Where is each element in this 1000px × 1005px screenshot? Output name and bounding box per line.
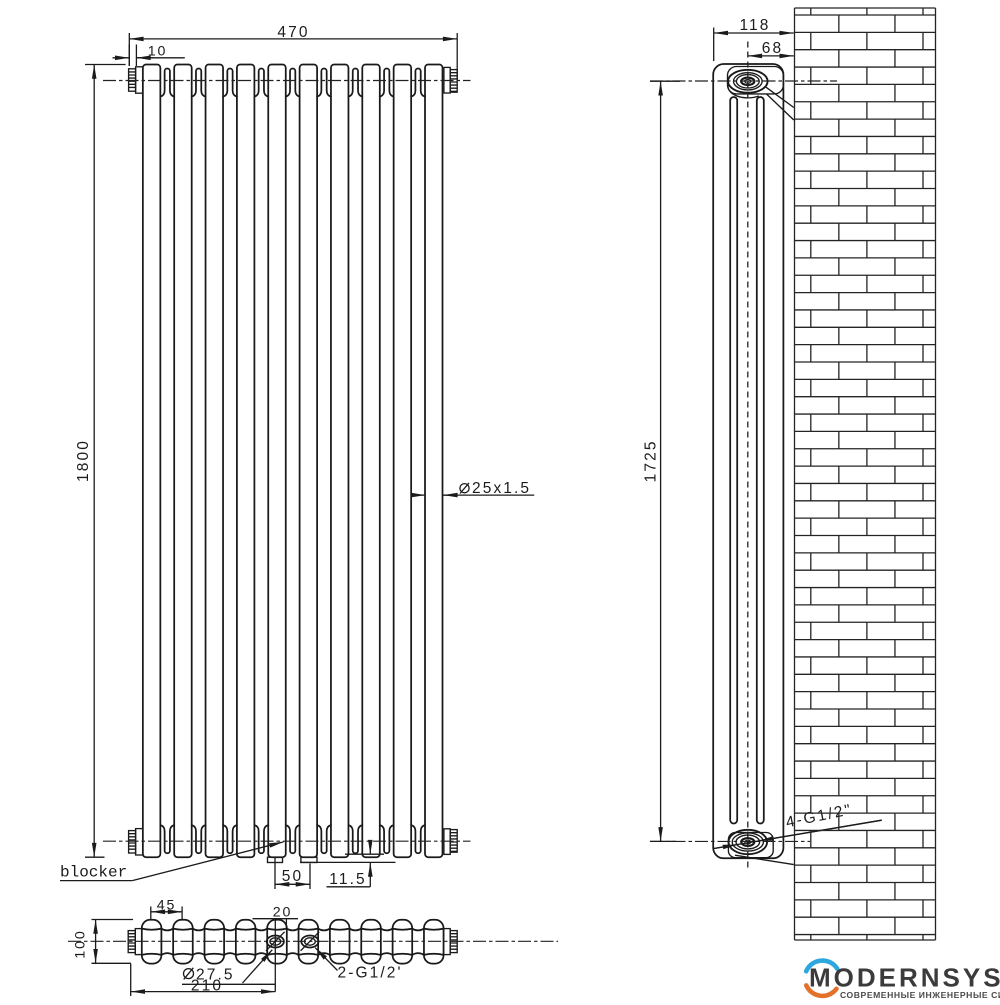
svg-text:СОВРЕМЕННЫЕ ИНЖЕНЕРНЫЕ СИСТЕМЫ: СОВРЕМЕННЫЕ ИНЖЕНЕРНЫЕ СИСТЕМЫ: [840, 990, 1000, 1000]
svg-text:68: 68: [762, 40, 783, 57]
svg-text:2-G1/2': 2-G1/2': [338, 965, 403, 982]
svg-text:210: 210: [191, 977, 223, 994]
svg-text:1725: 1725: [643, 439, 660, 482]
svg-text:470: 470: [277, 24, 309, 41]
svg-text:1800: 1800: [75, 439, 92, 482]
svg-text:11.5: 11.5: [329, 871, 366, 888]
svg-text:118: 118: [739, 17, 770, 34]
svg-text:blocker: blocker: [60, 864, 127, 882]
svg-text:100: 100: [73, 929, 89, 958]
svg-text:10: 10: [148, 44, 168, 60]
svg-text:25x1.5: 25x1.5: [472, 480, 531, 497]
svg-text:45: 45: [157, 898, 177, 914]
svg-text:20: 20: [273, 905, 293, 921]
svg-text:MODERNSYS: MODERNSYS: [809, 963, 1000, 993]
svg-text:50: 50: [282, 868, 303, 885]
